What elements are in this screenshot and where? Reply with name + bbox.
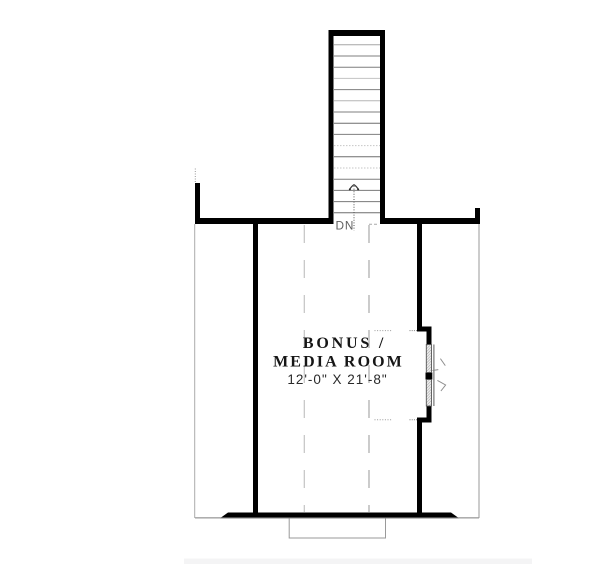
svg-text:12'-0" X 21'-8": 12'-0" X 21'-8" [287,372,387,387]
svg-text:BONUS /: BONUS / [303,335,386,352]
svg-text:MEDIA ROOM: MEDIA ROOM [273,354,404,371]
svg-text:DN: DN [336,219,355,233]
